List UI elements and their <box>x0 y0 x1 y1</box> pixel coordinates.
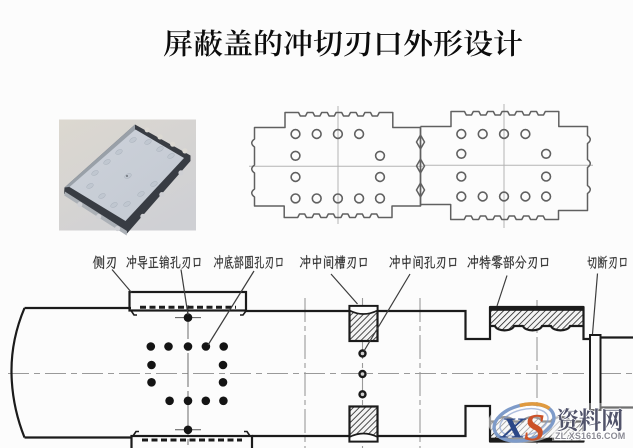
svg-text:ZL.XS1616.COM: ZL.XS1616.COM <box>555 431 625 441</box>
svg-text:S: S <box>524 407 545 448</box>
